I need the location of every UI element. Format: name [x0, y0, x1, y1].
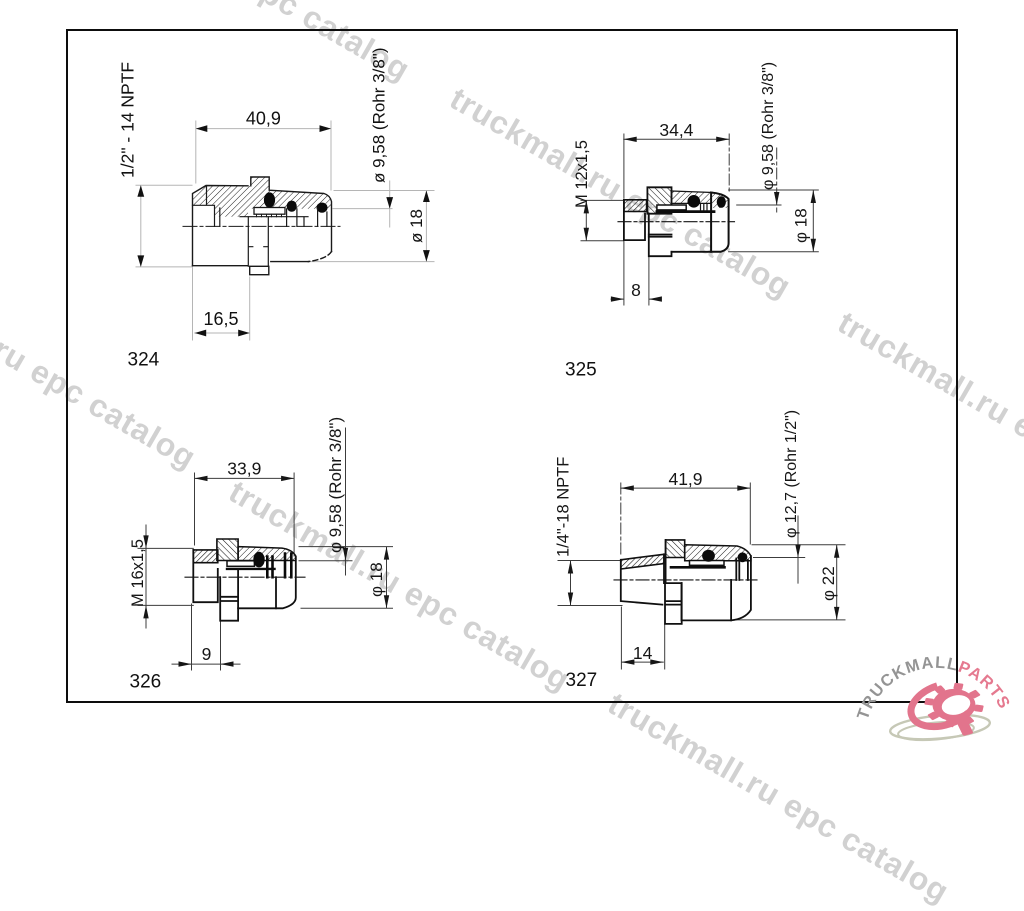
svg-text:M 12x1,5: M 12x1,5: [573, 140, 591, 208]
svg-text:M 16x1,5: M 16x1,5: [129, 539, 147, 607]
svg-text:1/4"-18 NPTF: 1/4"-18 NPTF: [555, 457, 573, 557]
svg-text:1/2" - 14 NPTF: 1/2" - 14 NPTF: [118, 62, 138, 178]
svg-text:40,9: 40,9: [246, 109, 281, 129]
svg-text:φ 12,7 (Rohr 1/2"): φ 12,7 (Rohr 1/2"): [783, 410, 800, 538]
svg-text:ø 9,58 (Rohr 3/8"): ø 9,58 (Rohr 3/8"): [370, 48, 389, 183]
svg-text:33,9: 33,9: [227, 459, 261, 479]
svg-text:ø 18: ø 18: [407, 209, 426, 243]
svg-text:14: 14: [633, 643, 653, 663]
svg-text:34,4: 34,4: [659, 120, 693, 140]
svg-text:325: 325: [565, 360, 597, 381]
svg-text:φ 18: φ 18: [367, 562, 386, 597]
svg-text:8: 8: [631, 280, 641, 300]
svg-text:φ 22: φ 22: [819, 566, 838, 601]
svg-text:φ 9,58 (Rohr 3/8"): φ 9,58 (Rohr 3/8"): [326, 417, 345, 553]
svg-text:324: 324: [128, 349, 160, 370]
svg-text:9: 9: [202, 644, 212, 664]
svg-text:326: 326: [130, 671, 162, 692]
svg-text:16,5: 16,5: [203, 309, 238, 329]
svg-text:φ 9,58 (Rohr 3/8"): φ 9,58 (Rohr 3/8"): [760, 62, 777, 190]
svg-text:φ 18: φ 18: [792, 208, 811, 243]
svg-text:327: 327: [566, 670, 598, 691]
svg-text:41,9: 41,9: [668, 469, 702, 489]
